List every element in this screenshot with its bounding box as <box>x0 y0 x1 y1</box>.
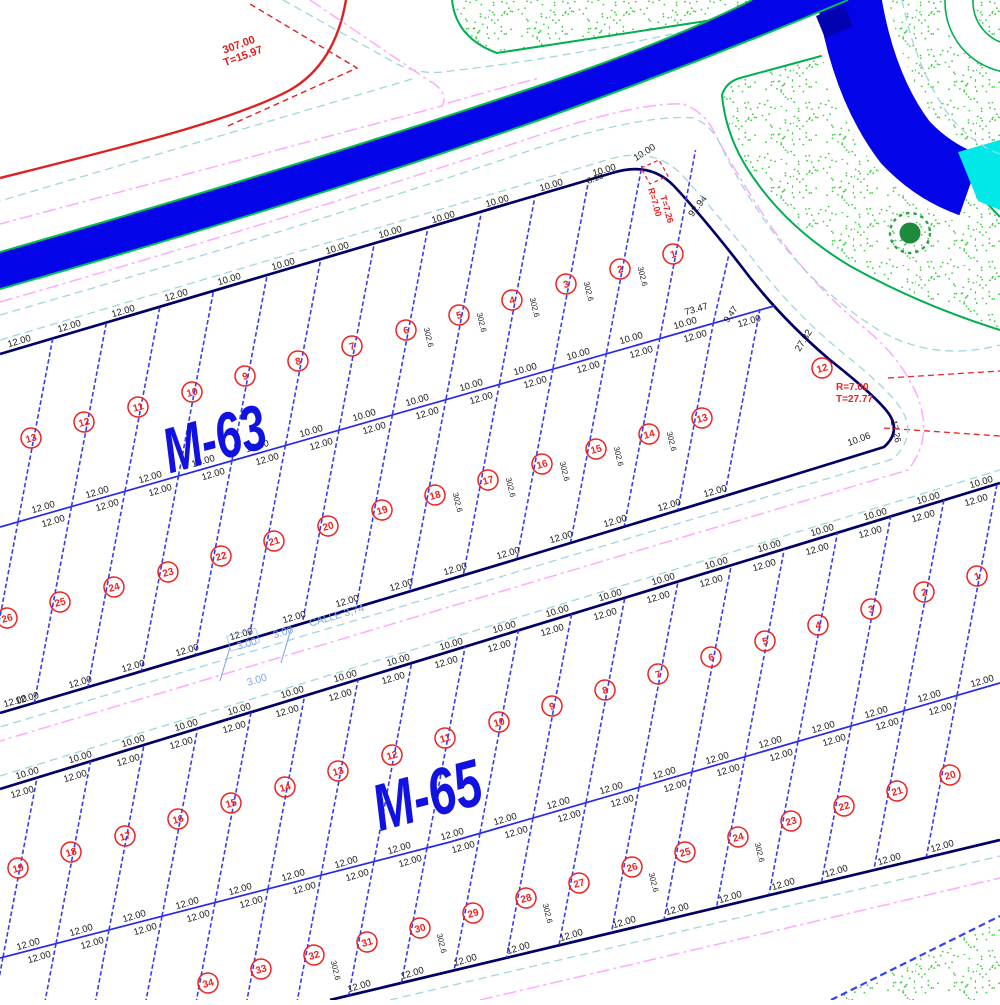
svg-text:16: 16 <box>535 458 549 472</box>
svg-text:23: 23 <box>161 566 175 580</box>
svg-text:302.6: 302.6 <box>475 312 489 334</box>
svg-text:9: 9 <box>548 701 557 713</box>
svg-text:302.6: 302.6 <box>451 492 465 514</box>
svg-text:302.6: 302.6 <box>612 446 626 468</box>
svg-text:12.00: 12.00 <box>539 622 565 639</box>
svg-text:12: 12 <box>385 749 399 763</box>
svg-text:24: 24 <box>731 831 745 845</box>
svg-text:2: 2 <box>920 587 929 599</box>
svg-text:16: 16 <box>171 813 185 827</box>
svg-text:22: 22 <box>214 550 228 564</box>
svg-text:27: 27 <box>572 877 586 891</box>
svg-text:19: 19 <box>375 504 389 518</box>
svg-text:33: 33 <box>254 963 268 977</box>
svg-text:12.00: 12.00 <box>592 606 618 623</box>
svg-text:14: 14 <box>278 781 292 795</box>
svg-text:302.6: 302.6 <box>753 842 767 864</box>
svg-text:19: 19 <box>11 862 25 876</box>
svg-text:23: 23 <box>784 815 798 829</box>
svg-text:22: 22 <box>837 800 851 814</box>
svg-text:302.6: 302.6 <box>504 477 518 499</box>
svg-text:15: 15 <box>224 797 238 811</box>
svg-text:14: 14 <box>642 428 656 442</box>
svg-text:26: 26 <box>0 612 14 626</box>
svg-text:73.47: 73.47 <box>683 301 709 318</box>
svg-text:12.00: 12.00 <box>821 732 847 749</box>
svg-text:10.00: 10.00 <box>565 346 591 363</box>
svg-text:10.00: 10.00 <box>632 142 658 164</box>
svg-text:7: 7 <box>654 669 663 681</box>
svg-text:10: 10 <box>185 386 199 400</box>
svg-text:20: 20 <box>321 520 335 534</box>
svg-text:12.00: 12.00 <box>26 949 52 966</box>
svg-text:12.00: 12.00 <box>503 824 529 841</box>
svg-text:20: 20 <box>943 769 957 783</box>
svg-text:27.32: 27.32 <box>793 328 815 354</box>
svg-text:302.6: 302.6 <box>665 431 679 453</box>
svg-text:15: 15 <box>589 443 603 457</box>
svg-text:5: 5 <box>455 310 464 322</box>
svg-text:302.6: 302.6 <box>422 327 436 349</box>
svg-text:302.6: 302.6 <box>541 903 555 925</box>
svg-text:13: 13 <box>24 432 38 446</box>
svg-text:12.00: 12.00 <box>344 867 370 884</box>
svg-text:12.00: 12.00 <box>751 557 777 574</box>
svg-text:12.00: 12.00 <box>115 752 141 769</box>
svg-text:25: 25 <box>53 596 67 610</box>
svg-text:12.00: 12.00 <box>9 784 35 801</box>
svg-text:12.00: 12.00 <box>79 935 105 952</box>
svg-text:12.00: 12.00 <box>221 719 247 736</box>
svg-text:R=7.00: R=7.00 <box>836 382 869 393</box>
svg-text:12.00: 12.00 <box>698 573 724 590</box>
svg-text:21: 21 <box>890 785 904 799</box>
svg-text:17: 17 <box>481 474 495 488</box>
svg-text:12.00: 12.00 <box>40 513 66 530</box>
svg-text:12: 12 <box>77 416 91 430</box>
svg-text:34: 34 <box>201 977 215 991</box>
svg-text:302.6: 302.6 <box>558 461 572 483</box>
svg-text:2: 2 <box>616 264 625 276</box>
svg-text:8: 8 <box>601 685 610 697</box>
svg-text:302.6: 302.6 <box>582 281 596 303</box>
svg-text:11: 11 <box>439 732 453 746</box>
svg-text:7: 7 <box>348 341 357 353</box>
svg-text:12.00: 12.00 <box>62 768 88 785</box>
svg-text:25: 25 <box>678 846 692 860</box>
svg-text:12.00: 12.00 <box>274 703 300 720</box>
svg-text:5: 5 <box>761 636 770 648</box>
svg-text:32: 32 <box>307 949 321 963</box>
svg-text:12.00: 12.00 <box>963 492 989 509</box>
svg-text:12.00: 12.00 <box>804 541 830 558</box>
svg-text:12.00: 12.00 <box>185 908 211 925</box>
svg-text:21: 21 <box>267 535 281 549</box>
svg-text:31: 31 <box>360 936 374 950</box>
svg-text:T=27.77: T=27.77 <box>836 394 873 405</box>
svg-text:302.6: 302.6 <box>528 297 542 319</box>
svg-text:6: 6 <box>402 325 411 337</box>
svg-text:10.00: 10.00 <box>351 407 377 424</box>
svg-text:11: 11 <box>132 401 146 415</box>
svg-text:302.6: 302.6 <box>329 960 343 982</box>
svg-text:8.10: 8.10 <box>585 171 604 186</box>
svg-text:26: 26 <box>625 861 639 875</box>
svg-text:4: 4 <box>814 620 823 632</box>
svg-text:12.00: 12.00 <box>238 894 264 911</box>
svg-text:12.00: 12.00 <box>662 778 688 795</box>
svg-text:10.06: 10.06 <box>846 430 872 448</box>
svg-text:17: 17 <box>118 830 132 844</box>
svg-text:10: 10 <box>492 716 506 730</box>
svg-text:302.6: 302.6 <box>636 266 650 288</box>
svg-text:3.00: 3.00 <box>272 624 295 641</box>
svg-text:30: 30 <box>413 922 427 936</box>
svg-text:12.00: 12.00 <box>397 853 423 870</box>
svg-text:18: 18 <box>64 846 78 860</box>
svg-text:92.94: 92.94 <box>686 194 709 220</box>
svg-text:13: 13 <box>695 412 709 426</box>
svg-text:10.00: 10.00 <box>512 361 538 378</box>
svg-text:12.00: 12.00 <box>327 687 353 704</box>
svg-text:12.00: 12.00 <box>30 499 56 516</box>
svg-text:302.6: 302.6 <box>435 933 449 955</box>
svg-text:3.00: 3.00 <box>245 672 268 689</box>
svg-text:1: 1 <box>973 571 982 583</box>
svg-text:M-63: M-63 <box>155 391 274 487</box>
svg-text:13: 13 <box>331 765 345 779</box>
svg-text:12.00: 12.00 <box>545 795 571 812</box>
svg-text:12: 12 <box>815 362 829 376</box>
svg-text:18: 18 <box>428 489 442 503</box>
svg-text:302.6: 302.6 <box>647 872 661 894</box>
svg-text:24: 24 <box>107 581 121 595</box>
svg-text:29: 29 <box>466 907 480 921</box>
svg-text:10.00: 10.00 <box>404 392 430 409</box>
svg-text:12.00: 12.00 <box>486 638 512 655</box>
svg-text:28: 28 <box>519 892 533 906</box>
